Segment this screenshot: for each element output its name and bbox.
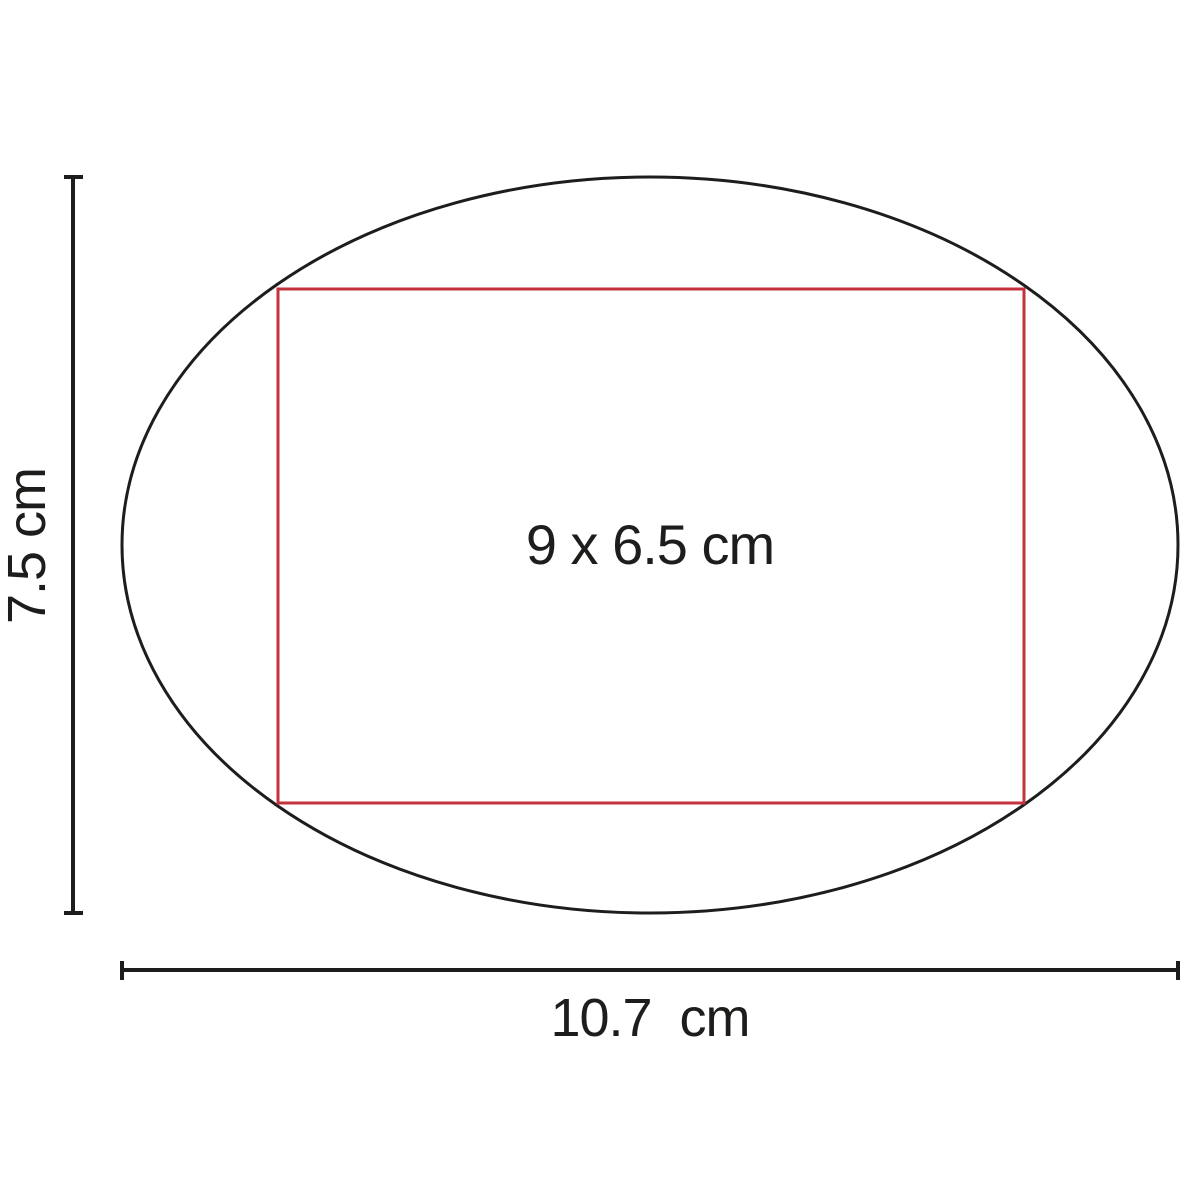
- imprint-area-diagram: 9 x 6.5 cm 7.5 cm 10.7 cm: [0, 0, 1200, 1200]
- width-dimension-line: [122, 961, 1178, 980]
- width-dimension-label: 10.7 cm: [550, 988, 749, 1048]
- diagram-canvas: 9 x 6.5 cm 7.5 cm 10.7 cm: [0, 0, 1200, 1200]
- height-dimension-label: 7.5 cm: [0, 468, 57, 624]
- print-area-size-label: 9 x 6.5 cm: [526, 513, 774, 576]
- height-dimension-line: [64, 177, 83, 913]
